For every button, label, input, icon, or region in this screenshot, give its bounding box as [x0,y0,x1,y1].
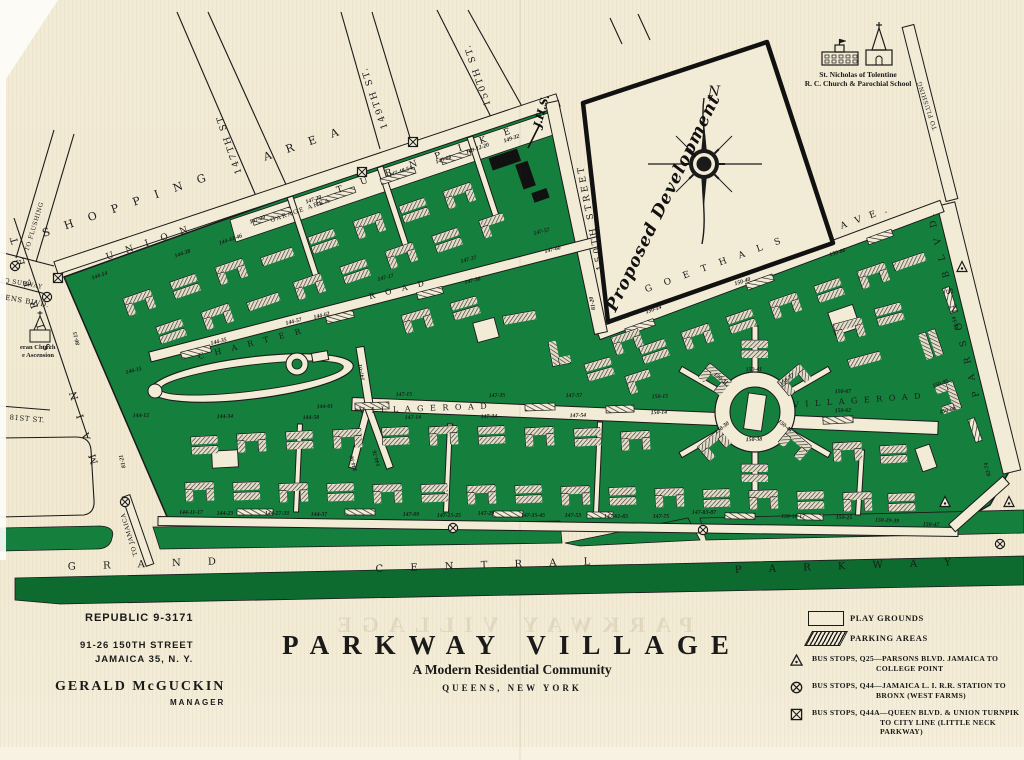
phone-number: REPUBLIC 9-3171 [85,612,352,624]
address-label: 147-83-87 [692,510,717,516]
address-label: 147-35 [489,393,506,400]
building-roof [238,441,246,452]
address-label: 150-62 [835,408,852,415]
building-roof [259,440,267,451]
legend-playgrounds: PLAY GROUNDS [788,610,1020,626]
bus-stop-triangle-icon [1004,497,1014,507]
median-band [0,526,113,551]
address-label: 80-15 [72,331,81,346]
church-body [866,50,892,65]
address-label: 150-38 [746,437,763,444]
address-label: 150-47 [923,522,941,529]
building-roof [355,436,363,447]
school-cupola [835,45,844,52]
building-roof [234,483,260,491]
church-spire [872,28,886,50]
building-roof [889,504,915,512]
building-roof [468,493,475,504]
street-edge [177,12,256,196]
building-roof [610,498,636,506]
bus-stop-square-x-icon [54,274,63,283]
manager-title: MANAGER [170,698,352,707]
building-roof [451,433,459,444]
block-corner [0,437,94,517]
legend-bus-q44: BUS STOPS, Q44—JAMAICA L. I. R.R. STATIO… [788,681,1020,700]
building-roof [186,490,193,501]
church-school-icons [822,22,892,65]
address-label: 150-67 [835,389,853,396]
building-roof [334,437,342,448]
church-school-caption2: R. C. Church & Parochial School [805,79,912,88]
address-label: 147-34 [481,414,498,421]
playgrounds-label: PLAY GROUNDS [850,610,1020,623]
address-label: 150-41 [746,367,763,374]
address-label: 144-34 [217,414,234,421]
bus-q25-line1: BUS STOPS, Q25—PARSONS BLVD. JAMAICA TO [812,654,1020,664]
building-roof [328,494,354,502]
address-label: 144-11-17 [179,510,204,516]
building-roof [422,485,448,493]
building-roof [383,427,409,435]
building-roof [742,351,768,358]
building-roof [575,438,601,446]
building-roof [704,500,730,508]
building-roof [889,494,915,502]
scan-corner [0,0,58,88]
page-title: PARKWAY VILLAGE [262,630,762,661]
address-label: 147-54 [570,413,587,420]
address-label: 81-21 [118,454,127,469]
legend-parking: PARKING AREAS [788,630,1020,646]
playgrounds-swatch-icon [808,611,844,626]
bus-q25-triangle-icon [790,654,803,667]
building-roof [489,493,496,504]
address-label: 144-58 [303,415,320,422]
bus-q25-line2: COLLEGE POINT [812,664,1020,674]
bus-stop-circle-x-icon [995,539,1004,548]
building-roof [395,492,402,503]
building-roof [798,502,824,510]
building-roof [383,437,409,445]
bus-q44-circle-icon [790,681,803,694]
building-roof [622,439,630,450]
parking-swatch-icon [804,631,848,646]
address-label: 147-53 [565,513,582,519]
street-edge [16,130,54,258]
address-label: 147-15-25 [437,513,461,519]
address-label: 147-29 [478,511,495,517]
address-label: 150-11-17 [781,514,806,520]
legend-bus-q25: BUS STOPS, Q25—PARSONS BLVD. JAMAICA TO … [788,654,1020,673]
bus-stop-circle-x-icon [120,497,129,506]
building-roof [562,494,569,505]
building-roof [865,500,872,511]
building-roof [301,491,308,502]
title-block: PARKWAY VILLAGE A Modern Residential Com… [262,630,762,693]
building-roof [834,450,842,461]
address-label: 147-35-45 [521,513,545,519]
street-edge [638,14,650,40]
building-roof [422,495,448,503]
parking-strip [525,403,555,411]
parking-strip [823,416,853,425]
left-church-caption1: eran Church [20,344,56,351]
building-roof [479,436,505,444]
bus-q44-line2: BRONX (WEST FARMS) [812,691,1020,701]
street-label: 81ST ST. [9,413,45,424]
building-roof [430,434,438,445]
parking-strip [725,513,755,520]
building-roof [798,492,824,500]
street-label: 147TH ST. [214,110,245,175]
building-roof [742,341,768,348]
street-edge [0,406,50,410]
bus-q44-line1: BUS STOPS, Q44—JAMAICA L. I. R.R. STATIO… [812,681,1020,691]
building-roof [547,434,555,445]
street-label: 149TH ST. [360,65,391,130]
street-edge [36,134,74,262]
building-roof [287,441,313,449]
building-roof [643,438,651,449]
building-roof [328,484,354,492]
address-label: 150-25 [836,515,853,522]
bus-stop-circle-x-icon [698,525,707,534]
bus-stop-square-x-icon [409,138,418,147]
bus-q44a-line3: PARKWAY) [812,727,1020,737]
address-label: 147-57 [566,393,584,400]
building-roof [192,436,218,444]
bus-stop-circle-x-icon [448,523,457,532]
left-church-caption2: e Ascension [22,352,54,359]
church-door [876,56,882,65]
building-roof [656,496,663,507]
church-school-caption1: St. Nicholas of Tolentine [819,70,897,79]
street-label: G R A N D [68,556,229,573]
address-label: 147-61-65 [604,514,628,520]
bus-stop-square-x-icon [358,168,367,177]
building-roof [855,449,863,460]
bus-stop-circle-x-icon [10,261,19,270]
address-label: 144-23 [217,511,234,517]
address-label: 144-61 [317,404,334,411]
address-label: 147-14 [405,415,422,422]
page-location: QUEENS, NEW YORK [262,683,762,693]
building-roof [742,475,768,482]
building-roof [280,491,287,502]
junction-center [292,359,302,369]
building-roof [704,490,730,498]
address-label: 150-29-39 [875,517,900,524]
map-legend: PLAY GROUNDS PARKING AREAS BUS STOPS, Q2… [788,610,1020,737]
parking-label: PARKING AREAS [850,630,1020,643]
bus-q44a-line1: BUS STOPS, Q44A—QUEEN BLVD. & UNION TURN… [812,708,1020,718]
building-roof [479,426,505,434]
address-label: 147-09 [403,512,420,518]
building-roof [234,493,260,501]
address-label: 144-37 [311,512,329,518]
address-label: 150-14 [651,410,668,417]
building-roof [583,494,590,505]
building-roof [750,498,757,509]
address-label: 150-15 [652,394,669,401]
oval-west-circle [148,384,162,398]
building-roof [207,490,214,501]
street-label: 150TH ST. [463,42,494,107]
building-roof [374,492,381,503]
address-label: 147-15 [396,392,413,399]
building-roof [881,445,907,453]
building-roof [771,498,778,509]
building-roof [287,431,313,439]
street-edge [208,12,288,189]
street-label: A R E A [261,124,346,164]
building-roof [526,435,534,446]
building-roof [677,496,684,507]
building-roof [192,446,218,454]
paper-fold-band [0,747,1024,760]
school-flag [840,39,847,43]
bus-q44a-line2: TO CITY LINE (LITTLE NECK [812,718,1020,728]
address-label: 144-12 [133,413,150,420]
address-label: 144-27-33 [265,511,289,517]
parking-strip [606,405,634,413]
building-roof [844,500,851,511]
parking-strip [345,509,375,515]
legend-bus-q44a: BUS STOPS, Q44A—QUEEN BLVD. & UNION TURN… [788,708,1020,737]
building-roof [610,488,636,496]
street-label: M A I N [66,384,100,465]
street-edge [610,18,622,44]
address-label: 147-75 [653,514,670,520]
bus-q44a-square-icon [790,708,803,721]
building-roof [742,465,768,472]
page-subtitle: A Modern Residential Community [262,662,762,678]
building-roof [881,455,907,463]
bus-stop-circle-x-icon [42,292,51,301]
building-roof [575,428,601,436]
